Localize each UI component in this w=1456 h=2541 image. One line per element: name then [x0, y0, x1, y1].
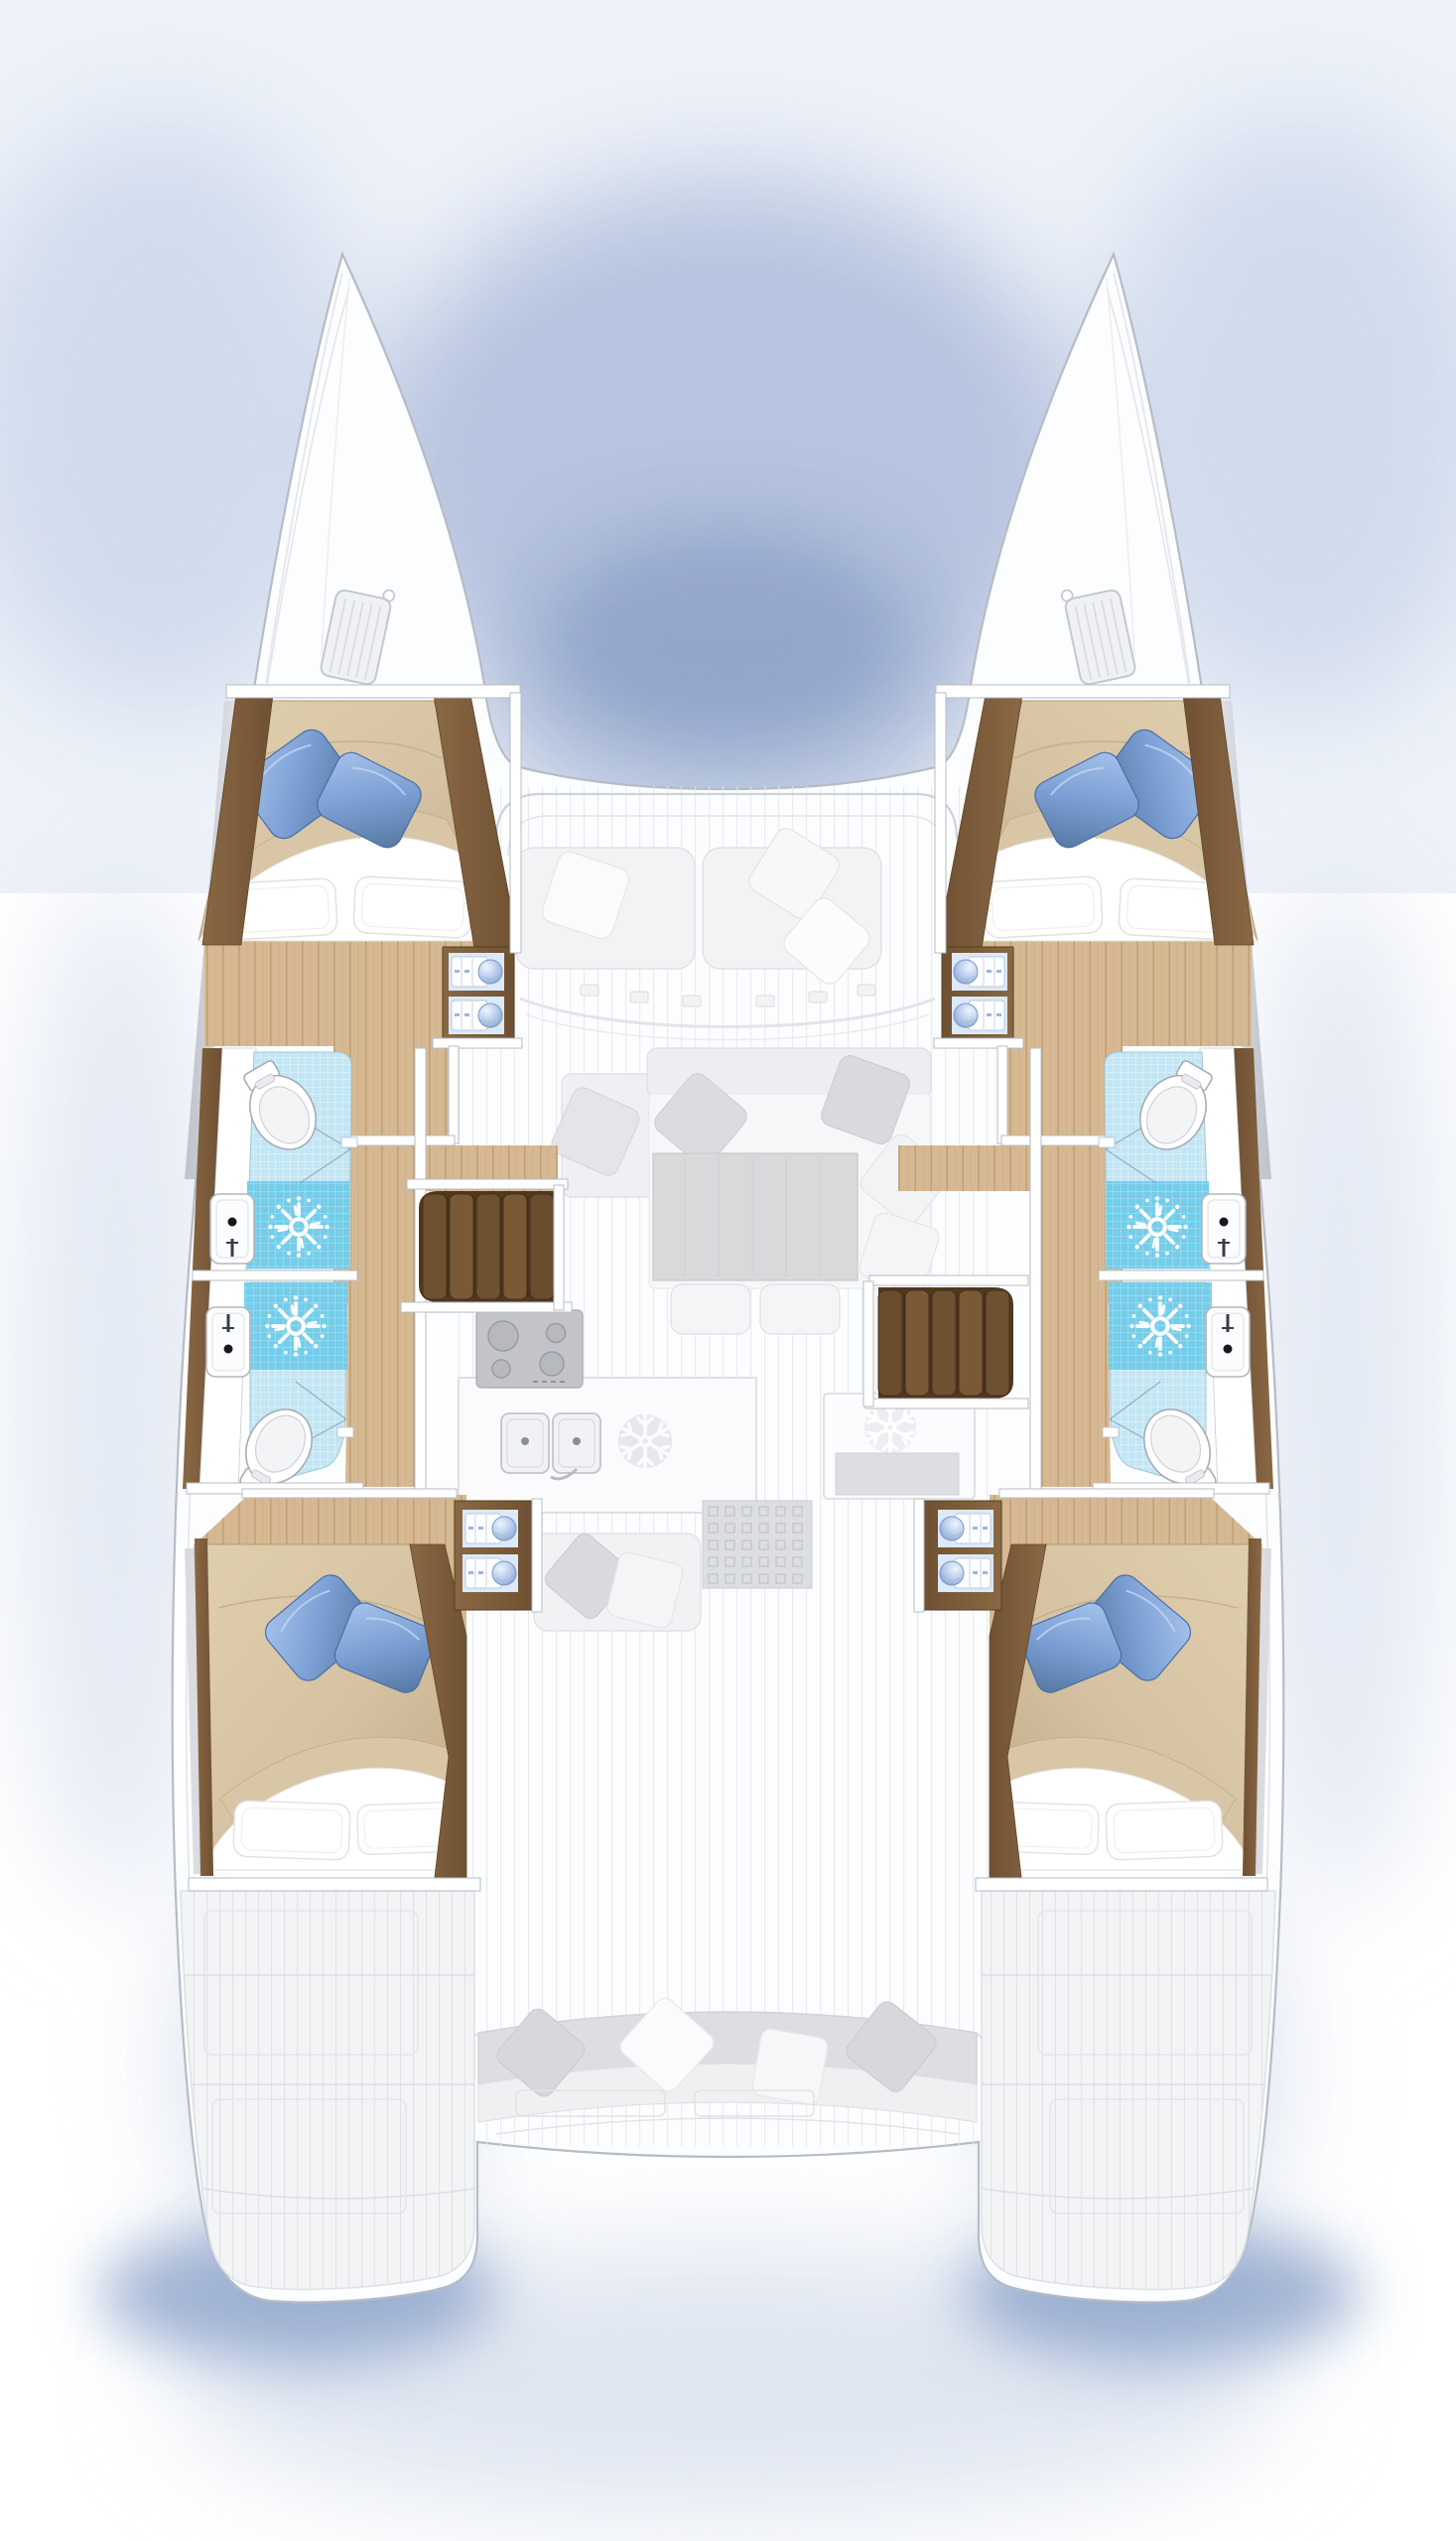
head-divider-wall	[193, 1270, 357, 1280]
stairs-port	[401, 1179, 572, 1312]
floor-grate	[703, 1501, 812, 1588]
stool	[760, 1284, 840, 1334]
swim-platform-starboard	[982, 1891, 1275, 2289]
towel-niche	[449, 953, 504, 991]
cockpit-pillow	[751, 2028, 830, 2106]
door-frame-tab	[341, 1137, 357, 1147]
swim-platform-port	[181, 1891, 474, 2289]
saloon-table	[653, 1153, 858, 1280]
white-pillow	[353, 876, 472, 939]
door-frame-tab	[337, 1427, 353, 1437]
floor-plan-canvas	[0, 0, 1456, 2541]
stool	[671, 1284, 750, 1334]
vanity-unit	[443, 947, 514, 1042]
towel-niche	[449, 997, 504, 1034]
freezer-unit-ghost	[824, 1394, 975, 1499]
chaise-ghost	[534, 1531, 701, 1631]
white-pillow	[233, 1801, 350, 1860]
towel-niche	[463, 1510, 518, 1547]
washbasin-icon	[210, 1194, 254, 1264]
stairs-starboard	[863, 1275, 1028, 1408]
catamaran-floor-plan	[0, 0, 1456, 2541]
vanity-unit	[455, 1501, 532, 1610]
head-aft-shower-floor	[244, 1282, 347, 1370]
washbasin-icon	[206, 1307, 250, 1377]
cooktop-icon	[476, 1310, 583, 1388]
towel-niche	[463, 1554, 518, 1592]
